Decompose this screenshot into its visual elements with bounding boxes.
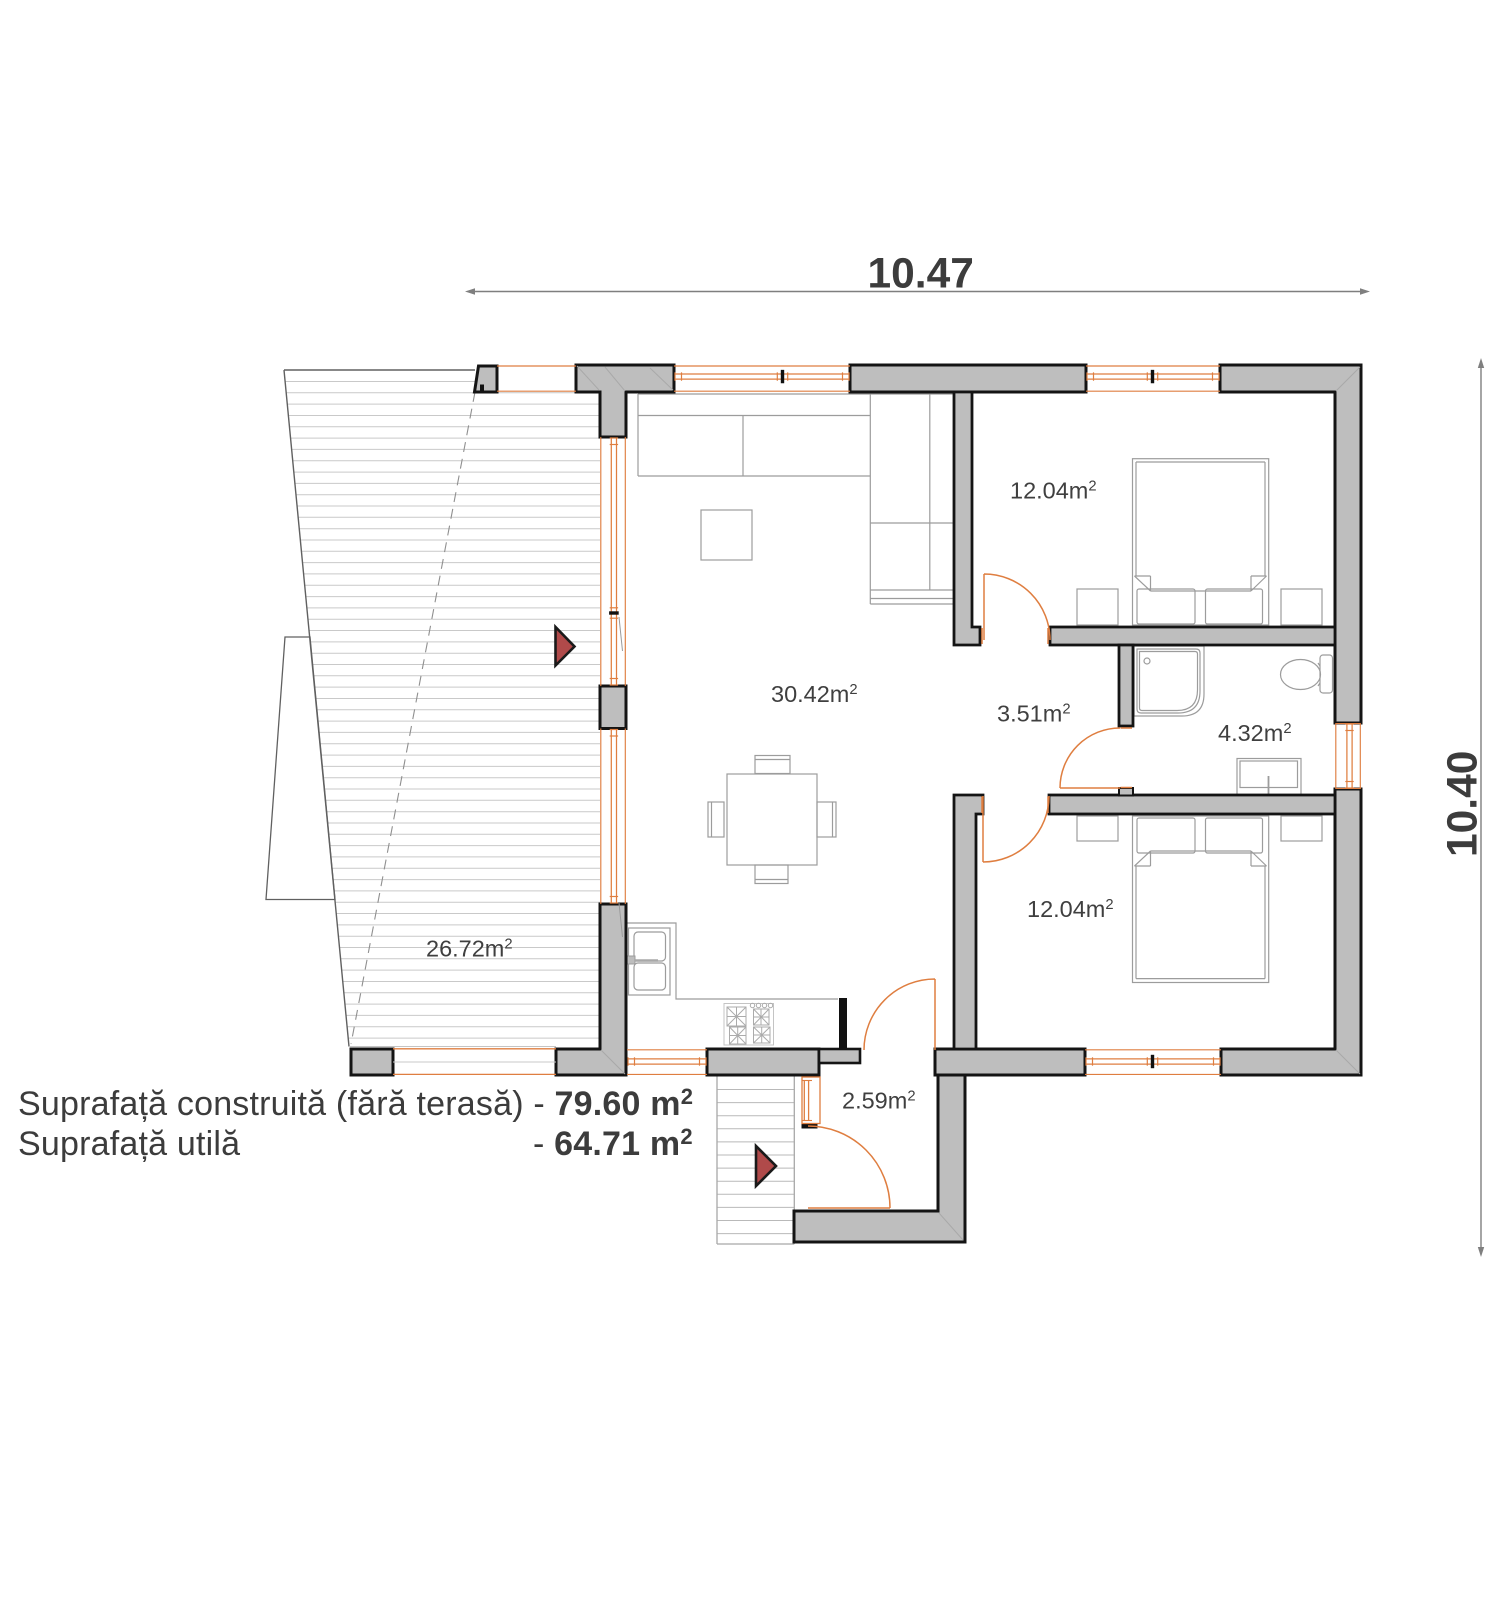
svg-text:12.04m2: 12.04m2 xyxy=(1010,478,1097,504)
svg-text:- 64.71 m2: - 64.71 m2 xyxy=(533,1124,693,1163)
svg-text:4.32m2: 4.32m2 xyxy=(1218,720,1292,746)
svg-text:26.72m2: 26.72m2 xyxy=(426,936,513,962)
svg-text:30.42m2: 30.42m2 xyxy=(771,681,858,707)
svg-text:3.51m2: 3.51m2 xyxy=(997,701,1071,727)
svg-text:2.59m2: 2.59m2 xyxy=(842,1088,916,1114)
svg-text:Suprafață utilă: Suprafață utilă xyxy=(18,1125,240,1163)
svg-text:Suprafață construită (fără ter: Suprafață construită (fără terasă) - 79.… xyxy=(18,1084,693,1123)
svg-text:10.47: 10.47 xyxy=(868,251,974,298)
svg-text:10.40: 10.40 xyxy=(1440,751,1487,857)
svg-text:12.04m2: 12.04m2 xyxy=(1027,896,1114,922)
